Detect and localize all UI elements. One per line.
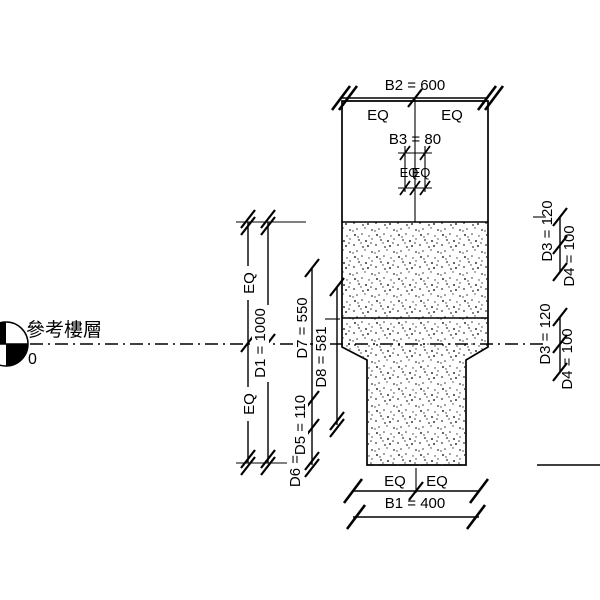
dim-b1-label[interactable]: B1 = 400: [385, 495, 445, 512]
level-name-label[interactable]: 參考樓層: [26, 319, 102, 341]
dim-d4-upper-label[interactable]: D4 = 100: [561, 225, 578, 286]
eq-label-top-right[interactable]: EQ: [441, 107, 463, 124]
eq-label-left-lower[interactable]: EQ: [241, 393, 258, 415]
family-profile-view: 參考樓層 0 B2 = 600 EQ EQ B3 = 80 EQ EQ: [0, 0, 600, 600]
dim-d7-label[interactable]: D7 = 550: [294, 297, 311, 358]
eq-label-bottom-left[interactable]: EQ: [384, 473, 406, 490]
eq-label-left-upper[interactable]: EQ: [241, 272, 258, 294]
eq-label-small-right[interactable]: EQ: [412, 165, 431, 180]
level-head-icon[interactable]: [0, 322, 28, 366]
dim-d1-label[interactable]: D1 = 1000: [252, 308, 269, 378]
eq-label-bottom-right[interactable]: EQ: [426, 473, 448, 490]
dim-d5-label[interactable]: D5 = 110: [292, 395, 309, 455]
dim-d4-lower-label[interactable]: D4 = 100: [559, 328, 576, 389]
eq-label-top-left[interactable]: EQ: [367, 107, 389, 124]
dim-d3-upper-label[interactable]: D3 = 120: [539, 200, 556, 261]
dim-d6-label[interactable]: D6 =: [287, 455, 304, 487]
drawing-canvas: 參考樓層 0 B2 = 600 EQ EQ B3 = 80 EQ EQ: [0, 0, 600, 600]
dim-b2-label[interactable]: B2 = 600: [385, 77, 445, 94]
dim-d8-label[interactable]: D8 = 581: [313, 326, 330, 387]
dim-d3-lower-label[interactable]: D3 = 120: [537, 303, 554, 364]
level-elevation-label[interactable]: 0: [28, 351, 37, 368]
